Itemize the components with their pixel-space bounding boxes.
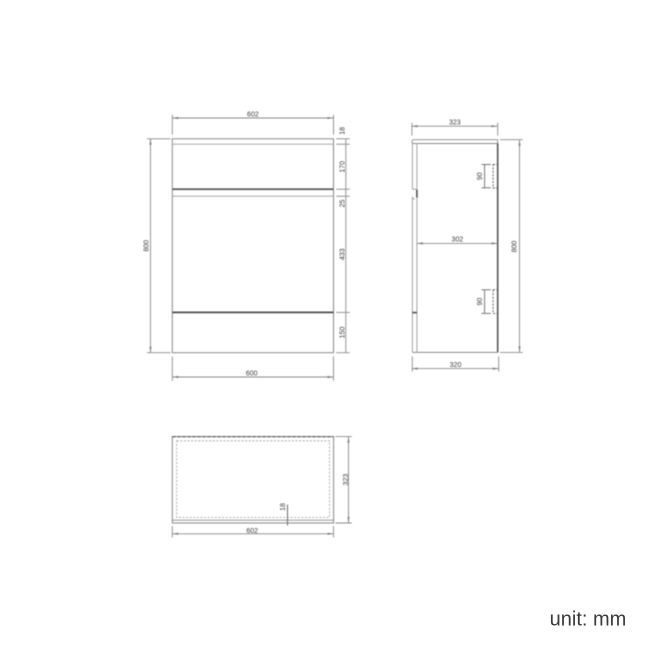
svg-text:433: 433 <box>340 248 347 260</box>
svg-text:90: 90 <box>477 172 484 180</box>
svg-text:602: 602 <box>247 111 259 118</box>
svg-text:800: 800 <box>143 240 150 252</box>
svg-text:25: 25 <box>340 200 347 208</box>
svg-text:800: 800 <box>511 241 518 253</box>
svg-text:323: 323 <box>449 119 461 126</box>
svg-text:150: 150 <box>340 327 347 339</box>
svg-text:90: 90 <box>477 298 484 306</box>
svg-text:18: 18 <box>340 127 347 135</box>
svg-text:170: 170 <box>340 161 347 173</box>
svg-text:323: 323 <box>343 474 350 486</box>
svg-text:18: 18 <box>280 503 287 511</box>
svg-text:302: 302 <box>452 237 464 244</box>
svg-text:602: 602 <box>246 528 258 535</box>
svg-text:320: 320 <box>450 362 462 369</box>
svg-text:unit: mm: unit: mm <box>550 609 627 631</box>
svg-text:600: 600 <box>246 370 258 377</box>
